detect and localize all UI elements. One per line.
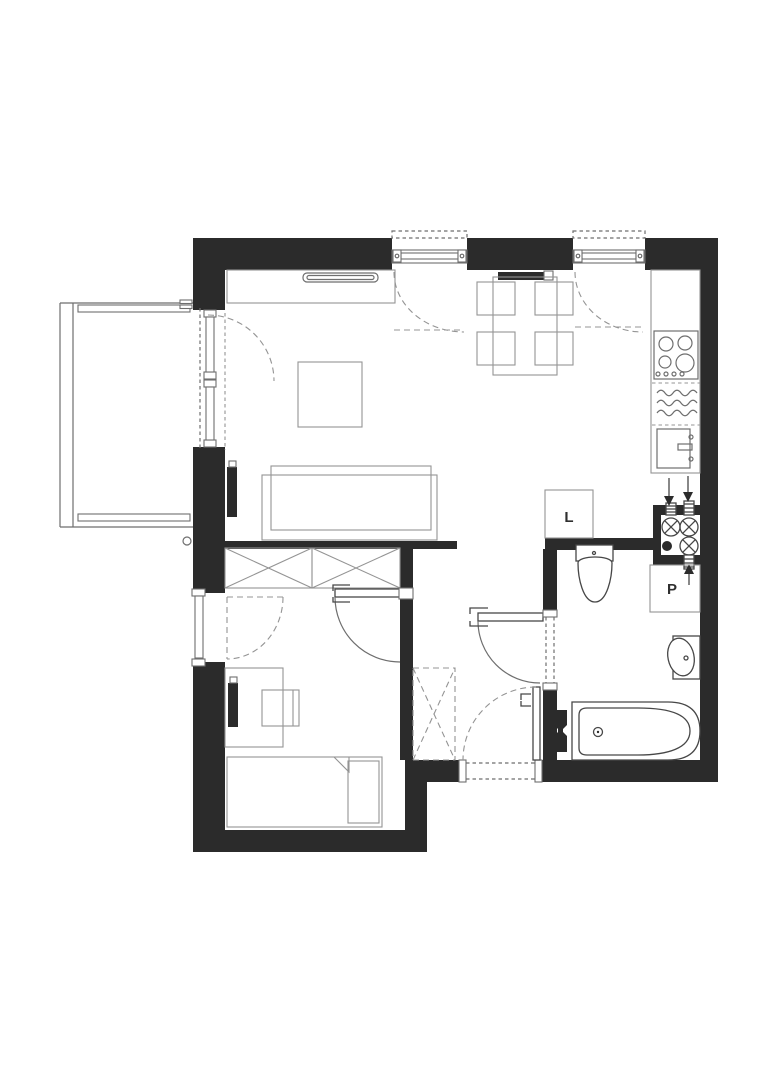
toilet [576, 545, 613, 602]
railing-slat-bottom [78, 514, 190, 521]
wall-left-lower [193, 662, 225, 852]
bathroom: P [470, 545, 700, 760]
door-jamb [459, 760, 466, 782]
bedroom [192, 585, 413, 827]
bathtub [572, 702, 700, 760]
radiator-dining [498, 272, 544, 280]
wall-right [700, 270, 718, 762]
wall-stub-hall [400, 549, 413, 589]
door-leaf [478, 613, 543, 621]
balcony [60, 300, 274, 545]
radiator-bedroom [228, 683, 238, 727]
window-swing-arc [575, 272, 643, 332]
bedroom-window [192, 589, 283, 666]
stove-knobs [656, 372, 684, 376]
door-swing-arc [335, 597, 400, 662]
door-swing-arc [463, 687, 536, 760]
wall-left-upper [193, 270, 225, 310]
radiator-living [227, 467, 237, 517]
balcony-door-window [200, 308, 274, 450]
gas-point [662, 541, 672, 551]
kitchen: L [545, 270, 700, 538]
chair [477, 282, 515, 315]
desk-chair [262, 690, 299, 726]
wall-top-mid [467, 238, 573, 270]
chair [477, 332, 515, 365]
fridge-label: L [564, 509, 573, 526]
wall-bath-west-upper [543, 549, 557, 617]
radiator-valve [544, 271, 553, 280]
chair [535, 332, 573, 365]
door-jamb [399, 588, 413, 599]
wall-bedroom-east [400, 599, 413, 760]
door-jamb [535, 760, 542, 782]
railing-anchor [180, 300, 192, 304]
radiator-valve [229, 461, 236, 467]
shaft-valves [662, 518, 698, 555]
entrance-door [459, 687, 542, 782]
drain-pipe [183, 537, 191, 545]
stove [654, 331, 698, 379]
single-bed [227, 757, 382, 827]
wardrobe [225, 548, 312, 588]
fridge-box: L [545, 490, 593, 538]
dining-table [493, 277, 557, 375]
door-swing-arc [208, 315, 274, 381]
door-leaf [335, 589, 402, 597]
dining-area [477, 271, 573, 375]
wall-bottom-bathroom [541, 760, 718, 782]
door-jamb [543, 610, 557, 617]
washer-label: P [667, 581, 677, 598]
door-leaf [533, 687, 540, 760]
door-hardware [521, 694, 531, 706]
door-swing-arc [478, 621, 540, 683]
wall-top-left [193, 238, 392, 270]
sofa [262, 466, 437, 540]
washbasin [664, 636, 700, 679]
window-swing-arc [394, 272, 464, 332]
window-kitchen [573, 231, 645, 332]
door-jamb [543, 683, 557, 690]
coffee-table [298, 362, 362, 427]
radiator-valve [230, 677, 237, 683]
tv-bar-inner [307, 276, 374, 280]
wardrobe [312, 548, 400, 588]
wall-left-mid [193, 447, 225, 593]
wall-bottom-bedroom [193, 830, 427, 852]
wall-bottom-entry-left [427, 760, 462, 782]
window-swing-arc [227, 597, 283, 659]
floor-plan: L [0, 0, 777, 1080]
railing-slat-top [78, 305, 190, 312]
wall-top-right [645, 238, 718, 270]
living-room [227, 270, 437, 540]
blanket-fold [334, 757, 349, 772]
kitchen-sink [657, 429, 693, 468]
railing-anchor [180, 305, 192, 309]
tv-bar [303, 273, 378, 282]
chair [535, 282, 573, 315]
burners [659, 336, 694, 372]
optional-wardrobe [413, 668, 455, 760]
window-dining [392, 231, 467, 332]
bathroom-door [470, 608, 557, 690]
pillow [348, 761, 379, 823]
installation-shaft [653, 476, 700, 585]
dishwasher [657, 390, 697, 416]
